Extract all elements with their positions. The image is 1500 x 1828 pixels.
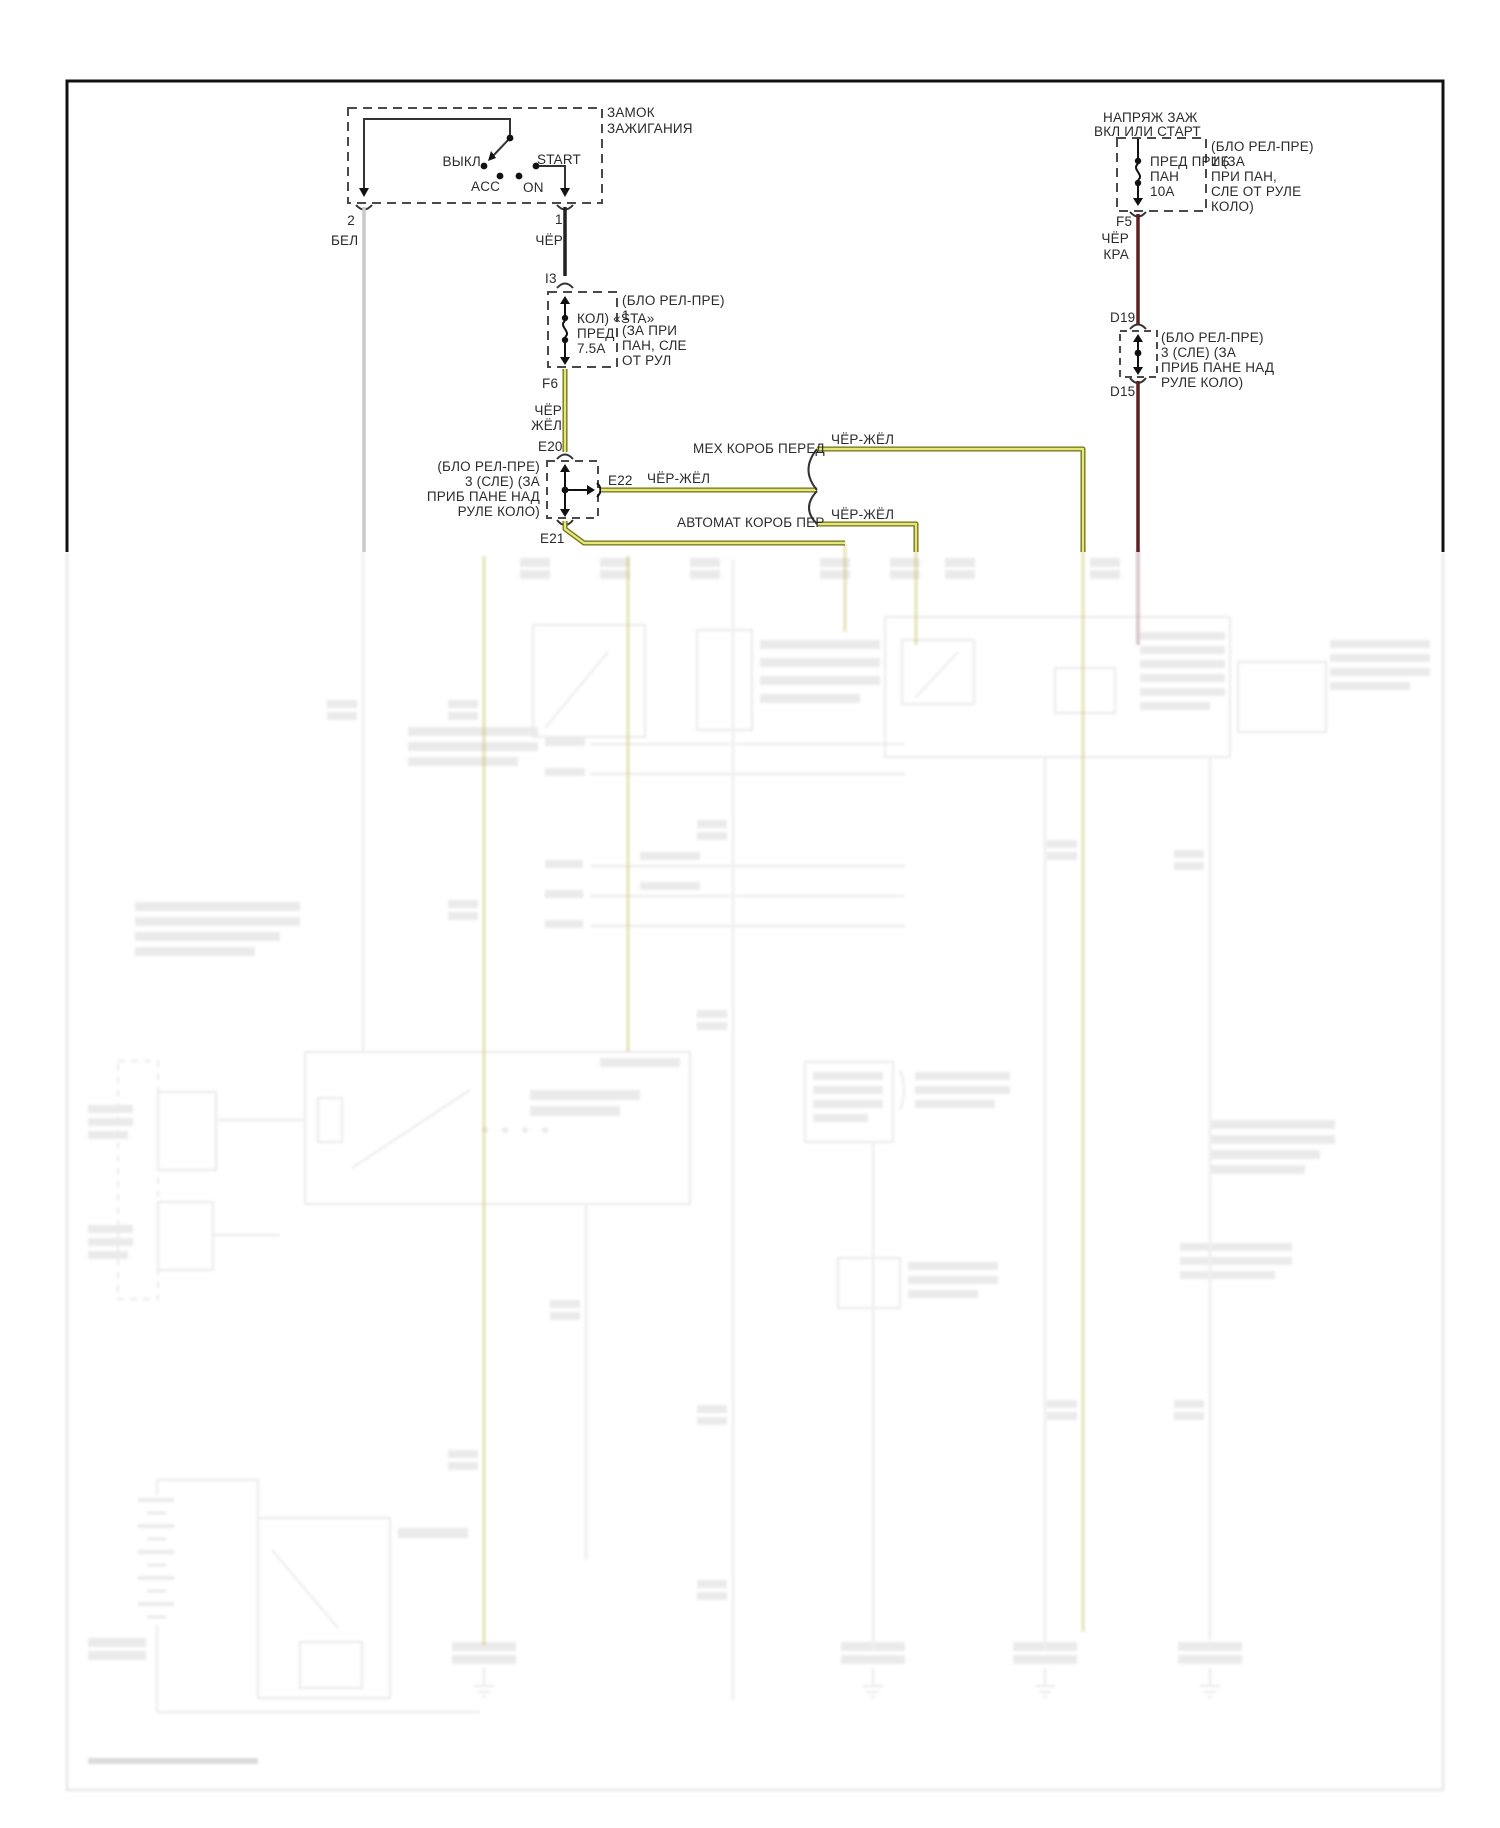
ghost-text-block-1 <box>760 640 880 703</box>
branch-label-auto: АВТОМАТ КОРОБ ПЕР <box>677 515 825 530</box>
wire-label-cher-zhel-1: ЧЁР <box>509 403 562 418</box>
right-feed-header-line1: НАПРЯЖ ЗАЖ <box>1103 110 1198 125</box>
ghost-left-label-block <box>135 902 300 956</box>
fuse-instrument-note-line1: (БЛО РЕЛ-ПРЕ) <box>1211 139 1314 154</box>
ghost-text-block-2 <box>1140 632 1430 710</box>
ghost-starter-box <box>258 1518 390 1698</box>
junction-e20-note-line4: РУЛЕ КОЛО) <box>359 504 540 519</box>
ignition-pos-off: ВЫКЛ <box>403 154 481 169</box>
connector-e20-icon <box>557 455 573 460</box>
arrow-down-icon <box>1133 198 1143 206</box>
fuse-instrument-note-line3: ПРИ ПАН, <box>1211 169 1277 184</box>
schematic-canvas <box>0 0 1500 1828</box>
ignition-title-line2: ЗАЖИГАНИЯ <box>607 121 693 136</box>
junction-e20-note-line1: (БЛО РЕЛ-ПРЕ) <box>359 459 540 474</box>
wire-label-cher-kra-1: ЧЁР <box>1076 231 1129 246</box>
ghost-battery <box>138 1480 480 1712</box>
arrow-up-icon <box>560 464 570 472</box>
ignition-pos-on: ON <box>523 180 544 195</box>
fuse-instrument-note-line5: КОЛО) <box>1211 199 1254 214</box>
arrow-up-icon <box>1133 334 1143 342</box>
arrow-up-icon <box>560 296 570 304</box>
arrow-right-icon <box>587 485 595 495</box>
fuse-instrument-label-line2: ПАН <box>1150 169 1179 184</box>
junction-d19-note-line3: ПРИБ ПАНЕ НАД <box>1161 360 1274 375</box>
fuse-sta-note-line1: (БЛО РЕЛ-ПРЕ) <box>622 293 725 308</box>
wiring-diagram-page: ЗАМОК ЗАЖИГАНИЯ ВЫКЛ START ACC ON 2 1 БЕ… <box>0 0 1500 1828</box>
wire-label-manual: ЧЁР-ЖЁЛ <box>831 432 894 447</box>
ignition-pos-start: START <box>537 152 581 167</box>
wire-cher-zhel-auto <box>817 524 916 552</box>
connector-label-e21: E21 <box>540 531 565 546</box>
junction-d19-note-line1: (БЛО РЕЛ-ПРЕ) <box>1161 330 1264 345</box>
ghost-right-notes <box>1180 1120 1335 1279</box>
connector-label-e22: E22 <box>608 473 633 488</box>
lever-arrow-icon <box>488 151 496 161</box>
connector-label-f6: F6 <box>542 376 558 391</box>
fuse-sta-label-line2: ПРЕД <box>577 326 615 341</box>
arrow-down-icon <box>1133 367 1143 375</box>
connector-label-d15: D15 <box>1110 384 1135 399</box>
ignition-pin-2: 2 <box>341 213 355 228</box>
ignition-pin-1: 1 <box>555 212 563 227</box>
fuse-instrument-label-line3: 10А <box>1150 184 1175 199</box>
arrow-down-icon <box>359 188 369 197</box>
connector-label-e20: E20 <box>538 439 563 454</box>
wire-label-cher-kra-2: КРА <box>1076 247 1129 262</box>
ghost-box-b <box>697 630 752 730</box>
fuse-sta-note-line4: ПАН, СЛЕ <box>622 338 687 353</box>
right-feed-header-line2: ВКЛ ИЛИ СТАРТ <box>1094 124 1201 139</box>
ghost-grounds <box>452 1642 1242 1697</box>
ghost-box-mid <box>305 1052 690 1204</box>
ghost-connector-row <box>520 558 1120 579</box>
wire-label-auto: ЧЁР-ЖЁЛ <box>831 507 894 522</box>
connector-d19-icon <box>1130 325 1146 330</box>
fuse-sta-symbol <box>560 296 570 365</box>
arrow-down-icon <box>560 509 570 517</box>
ghost-row-labels <box>408 727 700 928</box>
connector-i3-icon <box>557 284 573 289</box>
ghost-inline-connector-labels <box>327 700 1204 1600</box>
faded-footer-text <box>88 1758 258 1764</box>
fuse-sta-note-line5: ОТ РУЛ <box>622 353 671 368</box>
branch-label-manual: МЕХ КОРОБ ПЕРЕД <box>693 441 825 456</box>
junction-e20-note-line2: 3 (СЛЕ) (ЗА <box>359 474 540 489</box>
fuse-sta-label-line3: 7.5А <box>577 341 606 356</box>
wire-cher-zhel-manual <box>817 449 1083 552</box>
wire-label-cher: ЧЁР <box>510 233 563 248</box>
ignition-title-line1: ЗАМОК <box>607 105 655 120</box>
junction-e20-note-line3: ПРИБ ПАНЕ НАД <box>359 489 540 504</box>
fuse-instrument-note-line4: СЛЕ ОТ РУЛЕ <box>1211 184 1301 199</box>
ignition-pin-connectors <box>356 205 573 210</box>
wire-label-bel: БЕЛ <box>331 233 358 248</box>
junction-d19-note-line2: 3 (СЛЕ) (ЗА <box>1161 345 1236 360</box>
junction-d19-note-line4: РУЛЕ КОЛО) <box>1161 375 1243 390</box>
fuse-sta-note-line2: 1 <box>622 308 630 323</box>
ghost-faded-diagram <box>67 552 1443 1790</box>
arrow-down-icon <box>560 357 570 365</box>
ignition-pos-acc: ACC <box>471 179 500 194</box>
fuse-instrument-symbol <box>1133 139 1143 206</box>
fuse-sta-note-line3: (ЗА ПРИ <box>622 323 677 338</box>
connector-label-d19: D19 <box>1110 310 1135 325</box>
wire-label-cher-zhel-2: ЖЁЛ <box>509 418 562 433</box>
ghost-left-dashed-box <box>118 1061 158 1299</box>
connector-label-f5: F5 <box>1116 214 1132 229</box>
arrow-down-icon <box>560 188 570 197</box>
junction-e20-symbol <box>560 464 601 517</box>
fuse-instrument-note-line2: 1 (ЗА <box>1211 154 1245 169</box>
wire-label-e22: ЧЁР-ЖЁЛ <box>647 471 710 486</box>
connector-label-i3: I3 <box>545 271 557 286</box>
junction-d19-symbol <box>1133 334 1143 375</box>
